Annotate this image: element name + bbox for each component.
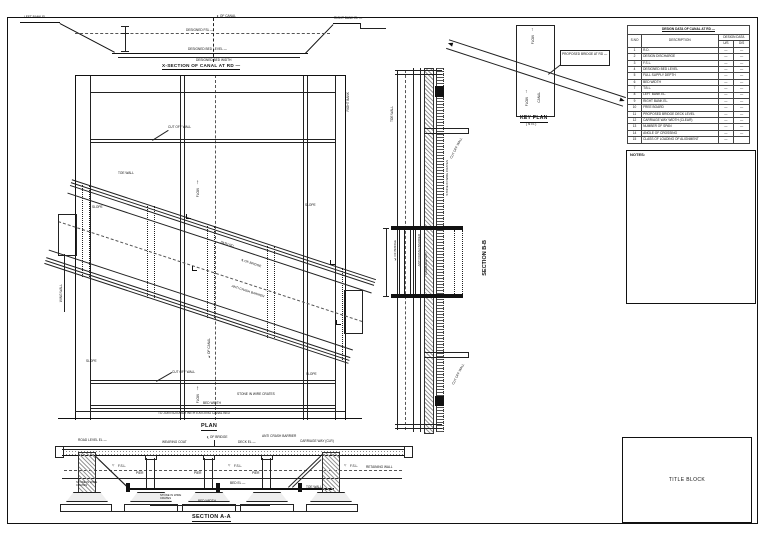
line <box>112 53 308 54</box>
fsl-label: F.S.L. <box>234 465 242 469</box>
abutment <box>322 452 340 494</box>
designed-bed-width-label: DESIGNED BED WIDTH <box>196 59 231 63</box>
notes-box: NOTES: <box>626 150 756 304</box>
flow-arrow: ↑ <box>531 28 534 34</box>
flow-arrow: ↑ <box>196 386 199 393</box>
bed-width-dim-line <box>150 505 270 506</box>
stone-crates-label: STONE IN WIRE CRATES <box>446 160 449 196</box>
col-sno: S.NO <box>628 35 642 48</box>
abutment-plan <box>344 290 363 334</box>
cell-us: — <box>718 137 734 143</box>
retaining-wall-label: RETAINING WALL <box>366 466 393 470</box>
plan-bottom-edge <box>58 418 362 419</box>
toe-wall-block <box>298 483 302 492</box>
right-bank-label: RIGHT BANK <box>347 92 351 111</box>
join-note-label: TO JOIN SUITABLY WITH EXISTING CANAL BED <box>158 412 230 416</box>
pier-shaft <box>262 458 271 488</box>
flow-label: FLOW <box>197 188 201 197</box>
dimension-tick <box>383 296 389 297</box>
fsl-line <box>75 33 330 34</box>
end-block <box>435 86 444 97</box>
carriage-way-label: CARRIAGE WAY (CLR) <box>300 440 334 444</box>
deck-line <box>410 230 411 294</box>
stone-pitching-strip <box>436 68 444 432</box>
cl-canal-label: ℄ OF CANAL <box>208 338 212 359</box>
title-block-label: TITLE BLOCK <box>669 478 705 483</box>
trough-wall-line <box>413 68 414 432</box>
bed-width-label: BED WIDTH <box>198 500 216 504</box>
pier-label: PIER <box>136 472 143 476</box>
dimension-line <box>125 26 126 52</box>
dimension-tick <box>121 33 129 34</box>
cell-ds <box>734 137 750 143</box>
stone-crates-label: STONE IN WIRE CRATES <box>76 481 102 487</box>
designed-fsl-label: DESIGNED FSL — <box>186 29 213 33</box>
cutoff-wall-line <box>90 142 335 143</box>
cutoff-wall-line <box>90 380 335 381</box>
dimension-tick <box>383 228 389 229</box>
pier-shaft <box>204 458 213 488</box>
flow-arrow: ↑ <box>525 90 528 96</box>
cutoff-wall-label: CUT OFF WALL <box>168 126 191 130</box>
toe-wall-block <box>216 483 220 492</box>
deck-bar <box>391 226 463 230</box>
cutoff-wall-line <box>424 128 468 129</box>
canal-label: CANAL <box>538 92 542 103</box>
section-aa-title: SECTION A-A <box>192 514 231 522</box>
dimension-line <box>386 228 387 296</box>
deck-line <box>399 230 400 294</box>
table-title-cell: DESIGN DATA OF CANAL AT RD — <box>628 26 750 35</box>
line <box>20 22 60 23</box>
pier-section <box>454 230 463 294</box>
line <box>395 424 442 425</box>
section-mark <box>186 214 191 219</box>
stone-crates-label: STONE IN WIRE CRATES <box>237 393 275 397</box>
deck-el-label: DECK EL — <box>238 441 256 445</box>
water-mark: ▽ <box>228 464 230 468</box>
section-bb-title: SECTION B-B <box>482 240 488 276</box>
notes-heading: NOTES: <box>630 153 755 157</box>
bed-el-label: BED EL — <box>230 482 245 486</box>
deck-end-block <box>55 446 64 458</box>
deck-line <box>415 230 416 294</box>
fsl-line <box>405 70 406 430</box>
wearing-coat-label: WEARING COAT <box>162 441 187 445</box>
pier-label: PIER <box>194 472 201 476</box>
table-title: DESIGN DATA OF CANAL AT RD — <box>662 27 715 32</box>
line <box>395 70 442 71</box>
toe-wall-line <box>307 75 308 420</box>
anti-crash-label: ANTI CRASH BARRIER <box>418 234 421 266</box>
toe-wall-label: TOE WALL <box>118 172 134 176</box>
flow-label: FLOW <box>526 97 530 106</box>
design-table-body: 1R.D.——2DESIGN DISCHARGE——3F.S.L.——4DESI… <box>628 47 750 143</box>
section-mark <box>192 266 197 271</box>
pier-plan <box>147 206 155 298</box>
line <box>360 28 386 29</box>
cutoff-wall-line <box>90 383 335 384</box>
slope-label: SLOPE <box>86 360 97 364</box>
pier-plan <box>82 185 90 277</box>
slope-label: SLOPE <box>305 204 316 208</box>
pier-plan <box>335 268 343 360</box>
bed-width-label: BED WIDTH <box>203 402 221 406</box>
pier-plan <box>207 226 215 318</box>
road-direction-arrow <box>447 41 453 46</box>
cl-bridge-label: ℄ OF BRIDGE <box>394 240 397 261</box>
deck-line <box>404 230 405 294</box>
dimension-line <box>64 254 65 312</box>
cutoff-wall-label: CUT OFF WALL <box>172 371 195 375</box>
section-mark <box>336 320 341 325</box>
centerline-tick <box>214 440 215 447</box>
line <box>395 428 442 429</box>
fsl-label: F.S.L. <box>118 465 126 469</box>
cutoff-wall-line <box>424 352 468 353</box>
overall-dim-line <box>96 511 334 512</box>
abutment <box>78 452 96 494</box>
flow-label: FLOW <box>532 35 536 44</box>
cutoff-wall-line <box>468 352 469 358</box>
dimension-tick <box>121 26 129 27</box>
fsl-line <box>64 470 402 471</box>
pier-shaft <box>146 458 155 488</box>
cutoff-wall-line <box>468 128 469 134</box>
bed-line <box>128 488 334 490</box>
slope-label: SLOPE <box>92 206 103 210</box>
right-bank-label: RIGHT BANK EL — <box>334 17 362 21</box>
cutoff-wall-line <box>90 139 335 140</box>
water-mark: ▽ <box>344 464 346 468</box>
section-mark <box>330 260 335 265</box>
table-title-row: DESIGN DATA OF CANAL AT RD — <box>628 26 750 35</box>
col-desc: DESCRIPTION <box>642 35 718 48</box>
cutoff-wall-line <box>424 357 468 358</box>
water-mark: ▽ <box>112 464 114 468</box>
flow-label: FLOW <box>197 394 201 403</box>
anti-crash-label: ANTI CRASH BARRIER <box>262 435 296 439</box>
designed-bed-level-label: DESIGNED BED LEVEL — <box>188 48 227 52</box>
carriage-way-label: CARRIAGE WAY <box>425 252 428 275</box>
wall-hatch-strip <box>424 68 434 434</box>
toe-wall-block <box>126 483 130 492</box>
cell-desc: CLASS OF LOADING OF ALIGNMENT <box>642 137 718 143</box>
road-line <box>62 446 404 447</box>
stone-crates-label: STONE IN WIRE CRATES <box>160 494 186 500</box>
pier-plan <box>267 246 275 338</box>
cl-canal-label: ℄ OF CANAL <box>217 15 236 19</box>
cutoff-wall-line <box>424 133 468 134</box>
plan-top-edge <box>75 75 345 76</box>
proposed-bridge-callout: PROPOSED BRIDGE AT RD — <box>560 50 610 66</box>
toe-wall-line <box>303 75 304 420</box>
slope-label: SLOPE <box>306 373 317 377</box>
table-row: 15CLASS OF LOADING OF ALIGNMENT— <box>628 137 750 143</box>
wing-wall-label: WING WALL <box>60 284 64 302</box>
drawing-sheet: LEFT BANK EL — RIGHT BANK EL — ℄ OF CANA… <box>0 0 768 542</box>
pier-label: PIER <box>252 472 259 476</box>
dimension-tick <box>121 51 129 52</box>
plan-bank-line <box>335 75 336 420</box>
line <box>333 23 360 24</box>
abutment-plan <box>58 214 77 256</box>
end-block <box>435 396 444 406</box>
bed-width-dim-line <box>90 408 335 409</box>
deck-end-block <box>404 446 413 458</box>
cell-no: 15 <box>628 137 642 143</box>
plan-right-edge <box>345 75 346 420</box>
cl-bridge-label: ℄ OF BRIDGE <box>207 436 227 440</box>
canal-centerline <box>213 18 214 62</box>
flow-arrow: ↑ <box>196 180 199 187</box>
keyplan-nts: ( NTS ) <box>526 123 536 127</box>
fsl-label: F.S.L. <box>350 465 358 469</box>
toe-wall-label: TOE WALL <box>306 486 322 490</box>
plan-line <box>90 92 335 93</box>
left-bank-label: LEFT BANK EL — <box>24 16 50 20</box>
deck-bar <box>391 294 463 298</box>
deck-soffit-line <box>62 455 404 456</box>
road-level-label: ROAD LEVEL EL — <box>78 439 107 443</box>
plan-title: PLAN <box>201 423 217 431</box>
xsection-title: X-SECTION OF CANAL AT RD — <box>162 63 240 70</box>
title-block: TITLE BLOCK <box>622 437 752 523</box>
design-data-table: DESIGN DATA OF CANAL AT RD — S.NO DESCRI… <box>627 25 750 144</box>
berm-line <box>62 478 402 479</box>
toe-wall-label: TOE WALL <box>391 106 395 122</box>
line <box>395 74 442 75</box>
